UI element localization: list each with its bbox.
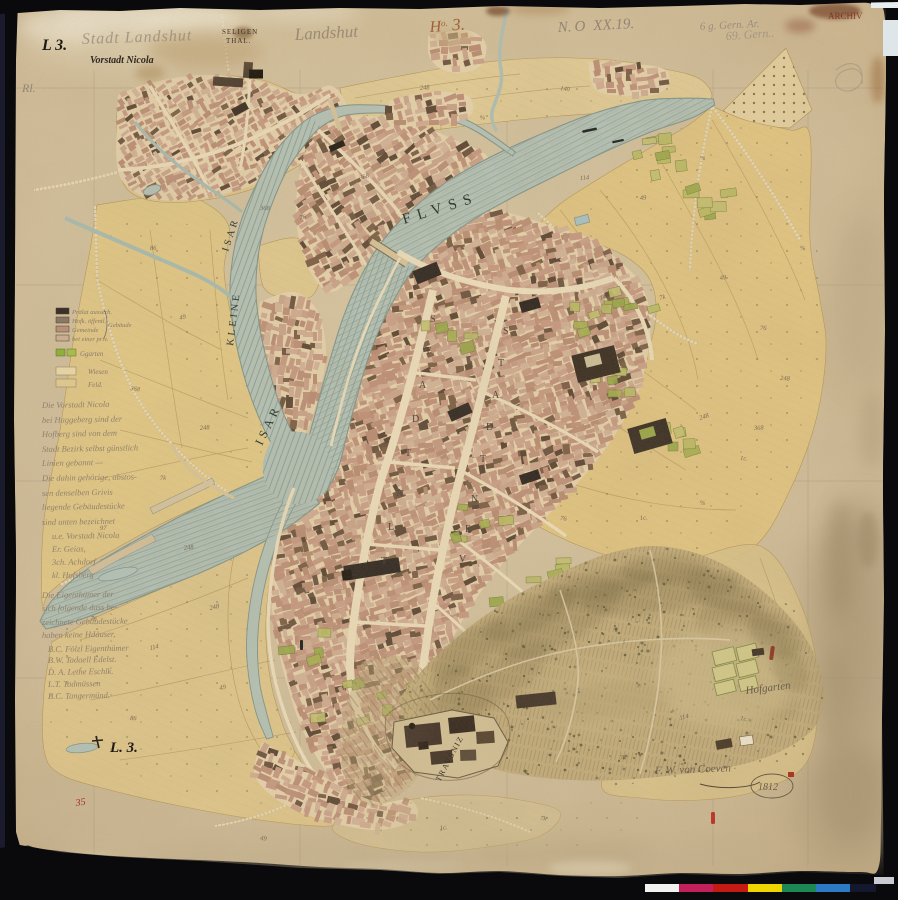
svg-text:ARCHIV: ARCHIV (828, 11, 863, 21)
svg-text:liegende Gebäudestücke: liegende Gebäudestücke (42, 501, 125, 512)
svg-text:B.W. Tadaell Edelst.: B.W. Tadaell Edelst. (48, 654, 117, 665)
svg-text:T: T (381, 556, 387, 567)
svg-text:D: D (412, 414, 419, 425)
svg-text:368: 368 (259, 205, 271, 212)
svg-text:T: T (405, 448, 411, 459)
svg-text:D. A. Lethe Eschlk.: D. A. Lethe Eschlk. (47, 666, 114, 677)
svg-text:E: E (465, 524, 471, 535)
svg-text:1c.: 1c. (640, 514, 649, 522)
svg-text:86: 86 (130, 715, 137, 722)
svg-text:86: 86 (150, 245, 157, 252)
svg-text:248: 248 (780, 375, 791, 383)
svg-text:T: T (480, 454, 486, 465)
svg-text:bei Haggeberg sind der: bei Haggeberg sind der (42, 414, 123, 425)
svg-text:7k: 7k (540, 815, 547, 823)
svg-text:L 3.: L 3. (41, 37, 67, 54)
svg-text:35: 35 (74, 797, 86, 809)
svg-text:1812: 1812 (758, 782, 778, 793)
svg-text:Die Eigenthümer der: Die Eigenthümer der (41, 589, 115, 600)
svg-text:A: A (396, 488, 404, 499)
svg-text:V: V (459, 554, 467, 565)
svg-text:Linien gebannt —: Linien gebannt — (41, 457, 104, 468)
svg-text:L: L (388, 522, 394, 533)
svg-text:SELIGEN: SELIGEN (222, 28, 258, 36)
svg-text:Landshut: Landshut (293, 22, 359, 44)
svg-text:Feld.: Feld. (87, 381, 103, 389)
svg-text:3ch. Achdorf: 3ch. Achdorf (51, 556, 98, 567)
svg-text:114: 114 (580, 174, 590, 182)
svg-text:Er. Geias,: Er. Geias, (51, 543, 86, 554)
svg-text:7k: 7k (160, 475, 166, 482)
svg-text:T: T (425, 346, 431, 357)
svg-text:1c.: 1c. (740, 455, 749, 463)
svg-text:haben keine Hdäuser,: haben keine Hdäuser, (42, 629, 116, 640)
svg-text:368: 368 (753, 424, 765, 432)
svg-text:248: 248 (200, 424, 211, 432)
svg-text:7k: 7k (619, 754, 626, 762)
svg-text:B.C. Fölzl Eigenthümer: B.C. Fölzl Eigenthümer (48, 643, 130, 654)
svg-text:76: 76 (760, 325, 767, 332)
svg-text:B.C. Tangermünd.: B.C. Tangermünd. (48, 690, 110, 701)
svg-text:248: 248 (419, 84, 430, 92)
svg-text:Gebäude: Gebäude (108, 322, 132, 329)
svg-text:248: 248 (183, 544, 194, 552)
svg-text:140: 140 (560, 85, 571, 93)
svg-text:THAL.: THAL. (226, 37, 251, 45)
svg-text:%: % (800, 245, 806, 252)
svg-text:A: A (419, 380, 427, 391)
svg-text:Vorstadt Nicola: Vorstadt Nicola (90, 55, 154, 66)
svg-text:A: A (492, 390, 500, 401)
svg-text:u.e. Vorstadt Nicola: u.e. Vorstadt Nicola (52, 530, 120, 541)
svg-text:Hofk. öffentl.: Hofk. öffentl. (71, 318, 106, 325)
svg-text:D: D (486, 422, 493, 433)
svg-text:Stadt Bezirk selbst günstlich: Stadt Bezirk selbst günstlich (42, 442, 138, 454)
svg-text:sich folgende dass be-: sich folgende dass be- (42, 602, 118, 613)
svg-text:L. 3.: L. 3. (109, 740, 138, 756)
svg-text:Hofberg sind von dem: Hofberg sind von dem (41, 428, 117, 439)
svg-text:N: N (471, 494, 478, 505)
svg-text:S: S (430, 314, 436, 325)
svg-text:zeichnete Gebäudestücke: zeichnete Gebäudestücke (41, 616, 128, 628)
svg-text:L.T. Tadmüssen: L.T. Tadmüssen (47, 678, 101, 689)
svg-text:Ggarten: Ggarten (80, 350, 104, 358)
svg-text:bei einer priv.: bei einer priv. (72, 336, 109, 343)
svg-text:Gemeinde: Gemeinde (72, 327, 98, 334)
svg-text:T: T (498, 358, 504, 369)
svg-text:Die dahin gehörige, abstos-: Die dahin gehörige, abstos- (41, 471, 137, 483)
svg-text:%: % (700, 155, 706, 162)
svg-text:Die Vorstadt Nicola: Die Vorstadt Nicola (41, 399, 110, 410)
svg-text:1c.: 1c. (439, 824, 448, 832)
svg-text:97: 97 (100, 525, 107, 532)
svg-text:S: S (503, 326, 509, 337)
svg-text:kl. Hofsberg: kl. Hofsberg (52, 569, 94, 580)
svg-text:Wiesen: Wiesen (88, 368, 108, 376)
svg-text:sen denselben Grivis: sen denselben Grivis (42, 487, 114, 498)
svg-text:%: % (700, 500, 706, 507)
svg-text:1c.: 1c. (740, 715, 749, 723)
svg-text:Rl.: Rl. (21, 81, 36, 95)
